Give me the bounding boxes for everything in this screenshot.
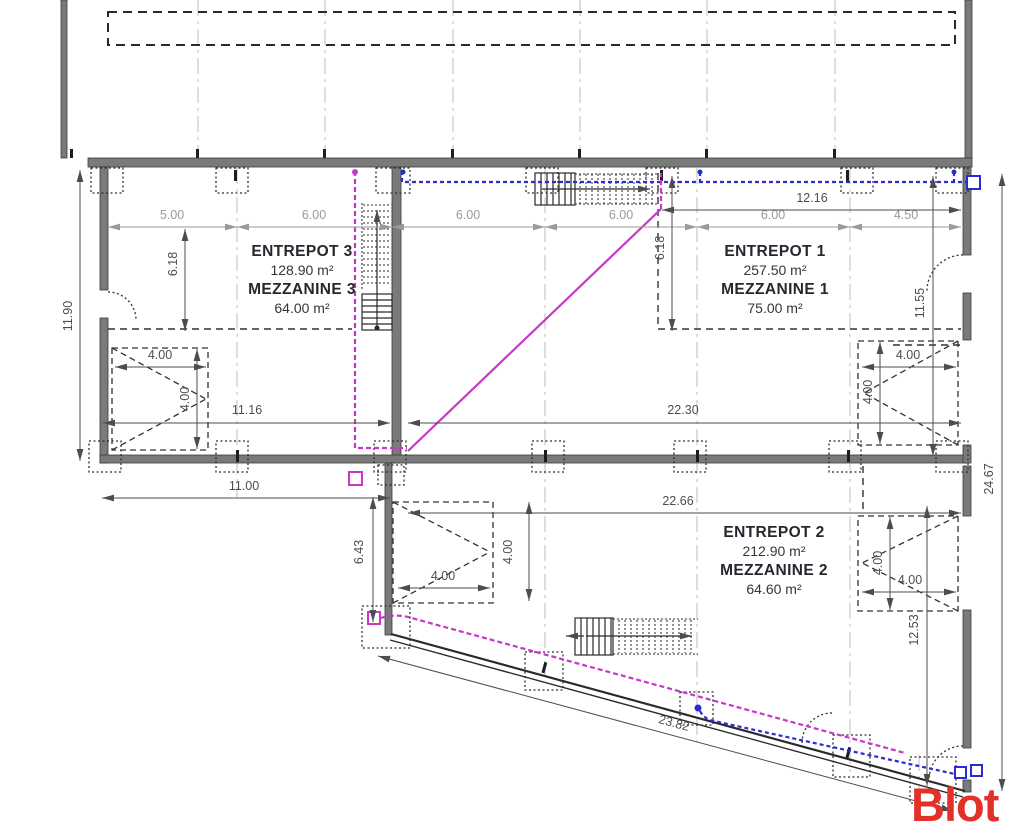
sectional-door-left: [112, 348, 208, 450]
dim-door-e2l-w: 4.00: [431, 569, 455, 583]
room-e1-mezz: MEZZANINE 1: [721, 281, 829, 298]
floor-plan-drawing: 5.00 6.00 6.00 6.00 6.00 4.50 12.16 11.9…: [0, 0, 1024, 831]
stairs-center: [362, 203, 392, 331]
e2-left-wall: [385, 463, 392, 635]
doors: [108, 255, 963, 780]
dim-bay-3: 6.00: [456, 208, 480, 222]
dim-bay-4: 6.00: [609, 208, 633, 222]
dim-bay-1: 5.00: [160, 208, 184, 222]
upper-left-wall: [61, 0, 67, 158]
column-boxes: [89, 168, 968, 803]
dim-door-e2r-w: 4.00: [898, 573, 922, 587]
walls: [88, 158, 972, 797]
dim-e3-width-out: 11.00: [229, 479, 259, 493]
magenta-terminal-1: [349, 472, 362, 485]
dim-mezz1-depth: 6.18: [653, 236, 667, 260]
room-e1-name: ENTREPOT 1: [724, 243, 825, 260]
room-labels: ENTREPOT 3 128.90 m² MEZZANINE 3 64.00 m…: [248, 243, 829, 597]
dim-door-left-h: 4.00: [178, 387, 192, 411]
stairs-top: [535, 173, 658, 205]
dim-lines: 12.16 11.90 6.18 6.18 11.55 24.67 11.16 …: [61, 170, 1002, 811]
grid-axes: [198, 0, 919, 820]
watermark-logo: Blot: [911, 778, 1000, 831]
dim-e3-width-in: 11.16: [232, 403, 262, 417]
dim-row-bays: 5.00 6.00 6.00 6.00 6.00 4.50: [108, 208, 961, 227]
dim-door-right-w: 4.00: [896, 348, 920, 362]
dim-e1-width-in: 22.30: [667, 403, 698, 417]
door-arc-right-e1: [927, 255, 963, 291]
room-e3-area: 128.90 m²: [270, 262, 333, 278]
upper-right-wall: [965, 0, 972, 158]
upper-dashed-zone: [108, 12, 955, 45]
right-wall-5: [963, 610, 971, 748]
blue-terminal-top: [967, 176, 980, 189]
room-e2-mezz-area: 64.60 m²: [746, 581, 802, 597]
right-wall-3: [963, 445, 971, 463]
blue-terminal-bottom-2: [971, 765, 982, 776]
upper-wall-ticks: [70, 149, 836, 158]
dim-total-height: 24.67: [982, 463, 996, 494]
door-arc-left: [108, 292, 136, 320]
room-e2-area: 212.90 m²: [742, 543, 805, 559]
room-e2-mezz: MEZZANINE 2: [720, 562, 828, 579]
room-e1-mezz-area: 75.00 m²: [747, 300, 803, 316]
dim-bay-2: 6.00: [302, 208, 326, 222]
dim-e2-right-height: 12.53: [907, 614, 921, 645]
dim-right-height-e1: 11.55: [913, 288, 927, 318]
dim-door-e2l-h: 4.00: [501, 540, 515, 564]
center-wall: [392, 167, 401, 463]
room-e2-name: ENTREPOT 2: [723, 524, 824, 541]
dim-mezz1-width: 12.16: [796, 191, 827, 205]
dim-doors: 4.00 4.00 4.00 4.00 4.00 4.00 4.00 4.00: [115, 342, 956, 610]
blue-terminal-bottom-1: [955, 767, 966, 778]
blue-conduit-e2: [700, 711, 955, 774]
stairs-e2: [566, 618, 698, 655]
left-wall-upper: [100, 167, 108, 290]
room-e3-name: ENTREPOT 3: [251, 243, 352, 260]
blue-conduit-top: [402, 171, 968, 182]
magenta-terminal-2: [368, 612, 380, 624]
dim-e2-width: 22.66: [662, 494, 693, 508]
room-e3-mezz-area: 64.00 m²: [274, 300, 330, 316]
room-e1-area: 257.50 m²: [743, 262, 806, 278]
magenta-diagonal: [408, 209, 661, 451]
dim-e2-left-height: 6.43: [352, 540, 366, 564]
slant-wall-outer: [391, 634, 965, 791]
dim-mezz3-depth: 6.18: [166, 252, 180, 276]
dim-door-right-h: 4.00: [861, 380, 875, 404]
right-wall-2: [963, 293, 971, 340]
right-wall-4: [963, 466, 971, 516]
top-wall: [88, 158, 972, 167]
dim-door-left-w: 4.00: [148, 348, 172, 362]
mid-wall: [100, 455, 968, 463]
dim-left-height: 11.90: [61, 301, 75, 331]
dim-door-e2r-h: 4.00: [871, 551, 885, 575]
room-e3-mezz: MEZZANINE 3: [248, 281, 356, 298]
floor-plan-page: 5.00 6.00 6.00 6.00 6.00 4.50 12.16 11.9…: [0, 0, 1024, 831]
